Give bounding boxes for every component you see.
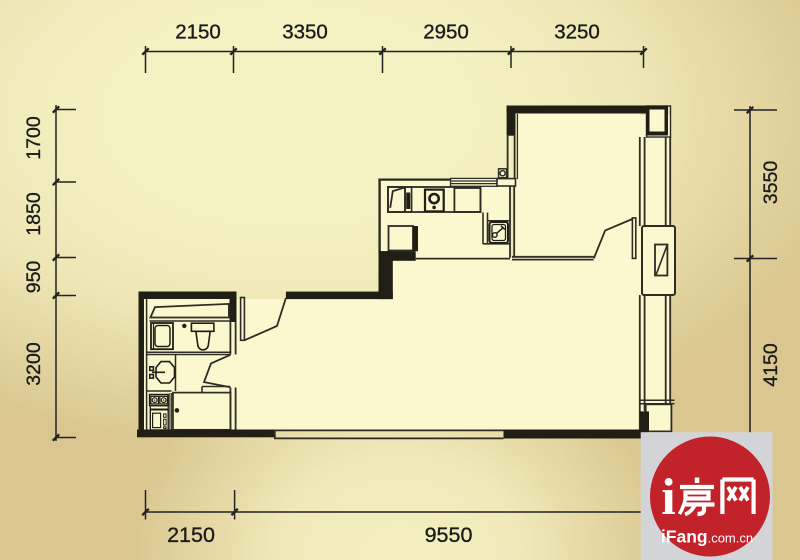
- svg-text:2150: 2150: [175, 21, 221, 44]
- svg-text:3250: 3250: [554, 21, 600, 44]
- svg-text:3550: 3550: [760, 161, 782, 205]
- svg-text:i: i: [661, 469, 675, 526]
- svg-text:2150: 2150: [167, 523, 215, 547]
- svg-text:1850: 1850: [23, 192, 45, 236]
- svg-text:3350: 3350: [282, 21, 328, 44]
- svg-text:1700: 1700: [23, 116, 45, 160]
- svg-text:2950: 2950: [423, 21, 469, 44]
- svg-text:9550: 9550: [425, 523, 473, 547]
- svg-text:3200: 3200: [23, 342, 45, 386]
- svg-text:950: 950: [23, 261, 45, 294]
- svg-text:4150: 4150: [760, 343, 782, 387]
